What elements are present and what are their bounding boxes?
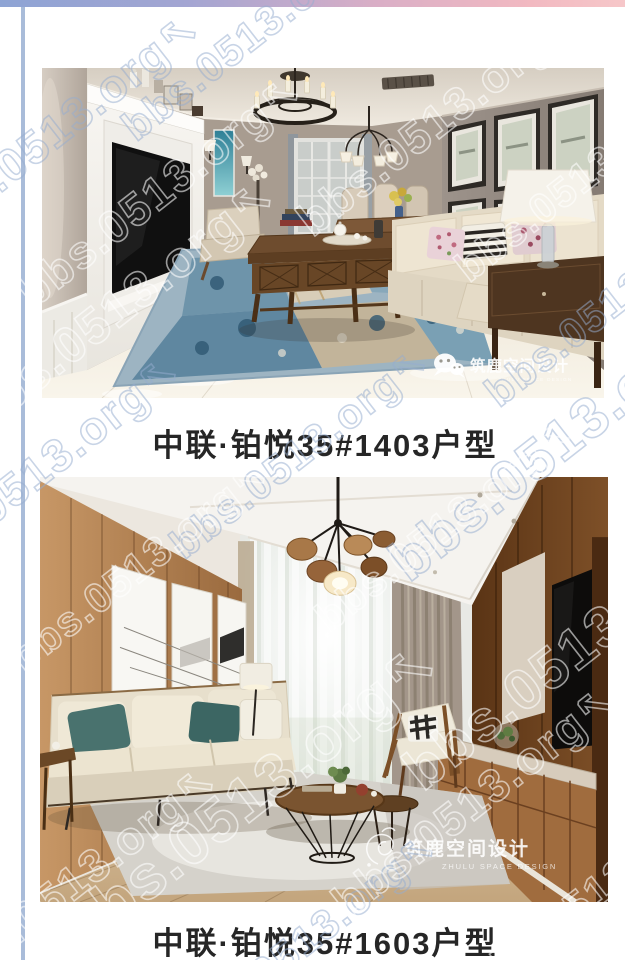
white-pillow	[240, 700, 282, 740]
brand-name: 筑鹿空间设计	[470, 356, 569, 375]
living-room-render-1: 筑鹿空间设计 ZHULU SPACE DESIGN	[42, 68, 604, 398]
striped-pillow	[461, 222, 508, 260]
plaid-pillow	[408, 715, 438, 742]
teal-pillow	[188, 701, 242, 746]
post-page: 筑鹿空间设计 ZHULU SPACE DESIGN 中联·铂悦35#1403户型	[0, 0, 625, 960]
listing-photo-1[interactable]: 筑鹿空间设计 ZHULU SPACE DESIGN	[42, 68, 604, 398]
image-caption-1: 中联·铂悦35#1403户型	[42, 420, 608, 465]
terrarium-plant	[494, 724, 518, 748]
brand-name: 筑鹿空间设计	[404, 837, 530, 860]
top-gradient-border	[0, 0, 625, 7]
floral-pillow	[426, 226, 465, 262]
listing-photo-2[interactable]: 筑鹿空间设计 ZHULU SPACE DESIGN	[40, 477, 608, 902]
plant-pot	[334, 784, 346, 794]
red-teapot	[356, 784, 368, 796]
image-caption-2: 中联·铂悦35#1603户型	[42, 918, 608, 960]
living-room-render-2: 筑鹿空间设计 ZHULU SPACE DESIGN	[40, 477, 608, 902]
brand-subtitle: ZHULU SPACE DESIGN	[498, 377, 573, 383]
inset-panel	[502, 552, 545, 724]
teal-artwork	[214, 130, 234, 196]
left-quote-border	[21, 7, 25, 960]
brand-subtitle: ZHULU SPACE DESIGN	[442, 862, 557, 871]
sofa	[46, 681, 312, 833]
